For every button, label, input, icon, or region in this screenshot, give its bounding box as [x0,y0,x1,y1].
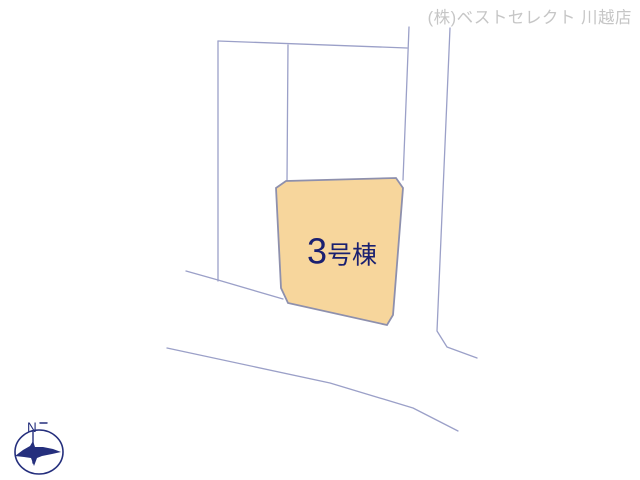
boundary-line-middle [287,45,288,181]
road-line [167,348,458,431]
lot-number: 3 [307,230,327,271]
compass: N [15,420,63,474]
lot-3-label: 3号棟 [307,230,377,272]
company-watermark: (株)ベストセレクト 川越店 [428,9,632,27]
lot-suffix: 号棟 [327,241,377,269]
compass-north-label: N [27,420,37,435]
boundary-line-right-outer [437,28,477,358]
boundary-line-southwest [186,271,283,299]
compass-bird-icon [15,441,61,466]
site-plan-image: N (株)ベストセレクト 川越店 3号棟 [0,0,640,480]
boundary-line-top [218,41,407,48]
boundary-line-right-inner [403,27,409,180]
